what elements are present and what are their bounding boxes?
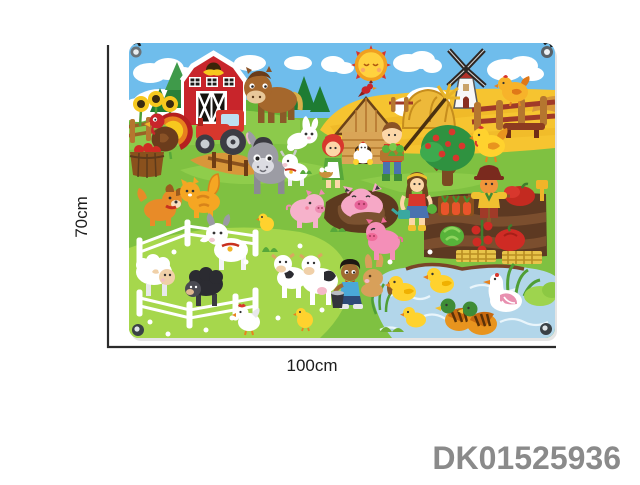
svg-text:DK01525936: DK01525936 — [432, 440, 621, 476]
svg-text:70cm: 70cm — [72, 196, 91, 238]
svg-text:100cm: 100cm — [286, 356, 337, 375]
